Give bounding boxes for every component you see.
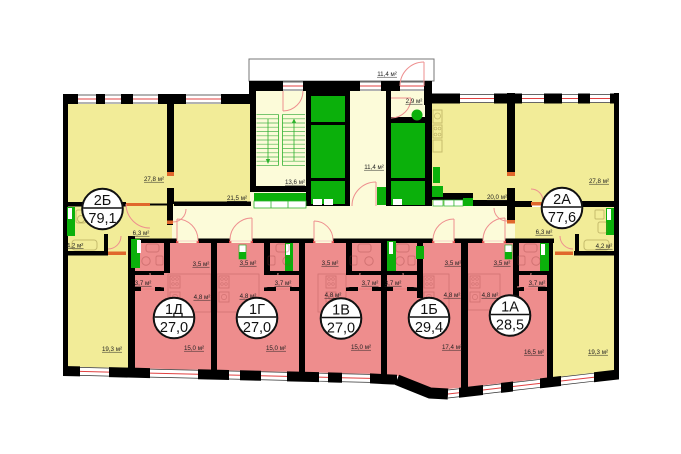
svg-text:27,0: 27,0 [160,320,188,336]
svg-text:2А: 2А [553,192,571,208]
svg-text:79,1: 79,1 [88,211,116,227]
svg-text:1Б: 1Б [420,302,438,318]
svg-text:27,0: 27,0 [327,321,355,337]
svg-text:1Д: 1Д [165,302,183,318]
svg-text:27,0: 27,0 [243,320,271,336]
svg-text:1Г: 1Г [249,302,265,318]
svg-text:1В: 1В [332,302,350,318]
svg-text:29,4: 29,4 [415,320,443,336]
svg-text:1А: 1А [501,299,519,315]
svg-text:77,6: 77,6 [548,210,576,226]
svg-text:2Б: 2Б [94,193,112,209]
svg-text:28,5: 28,5 [496,318,524,334]
